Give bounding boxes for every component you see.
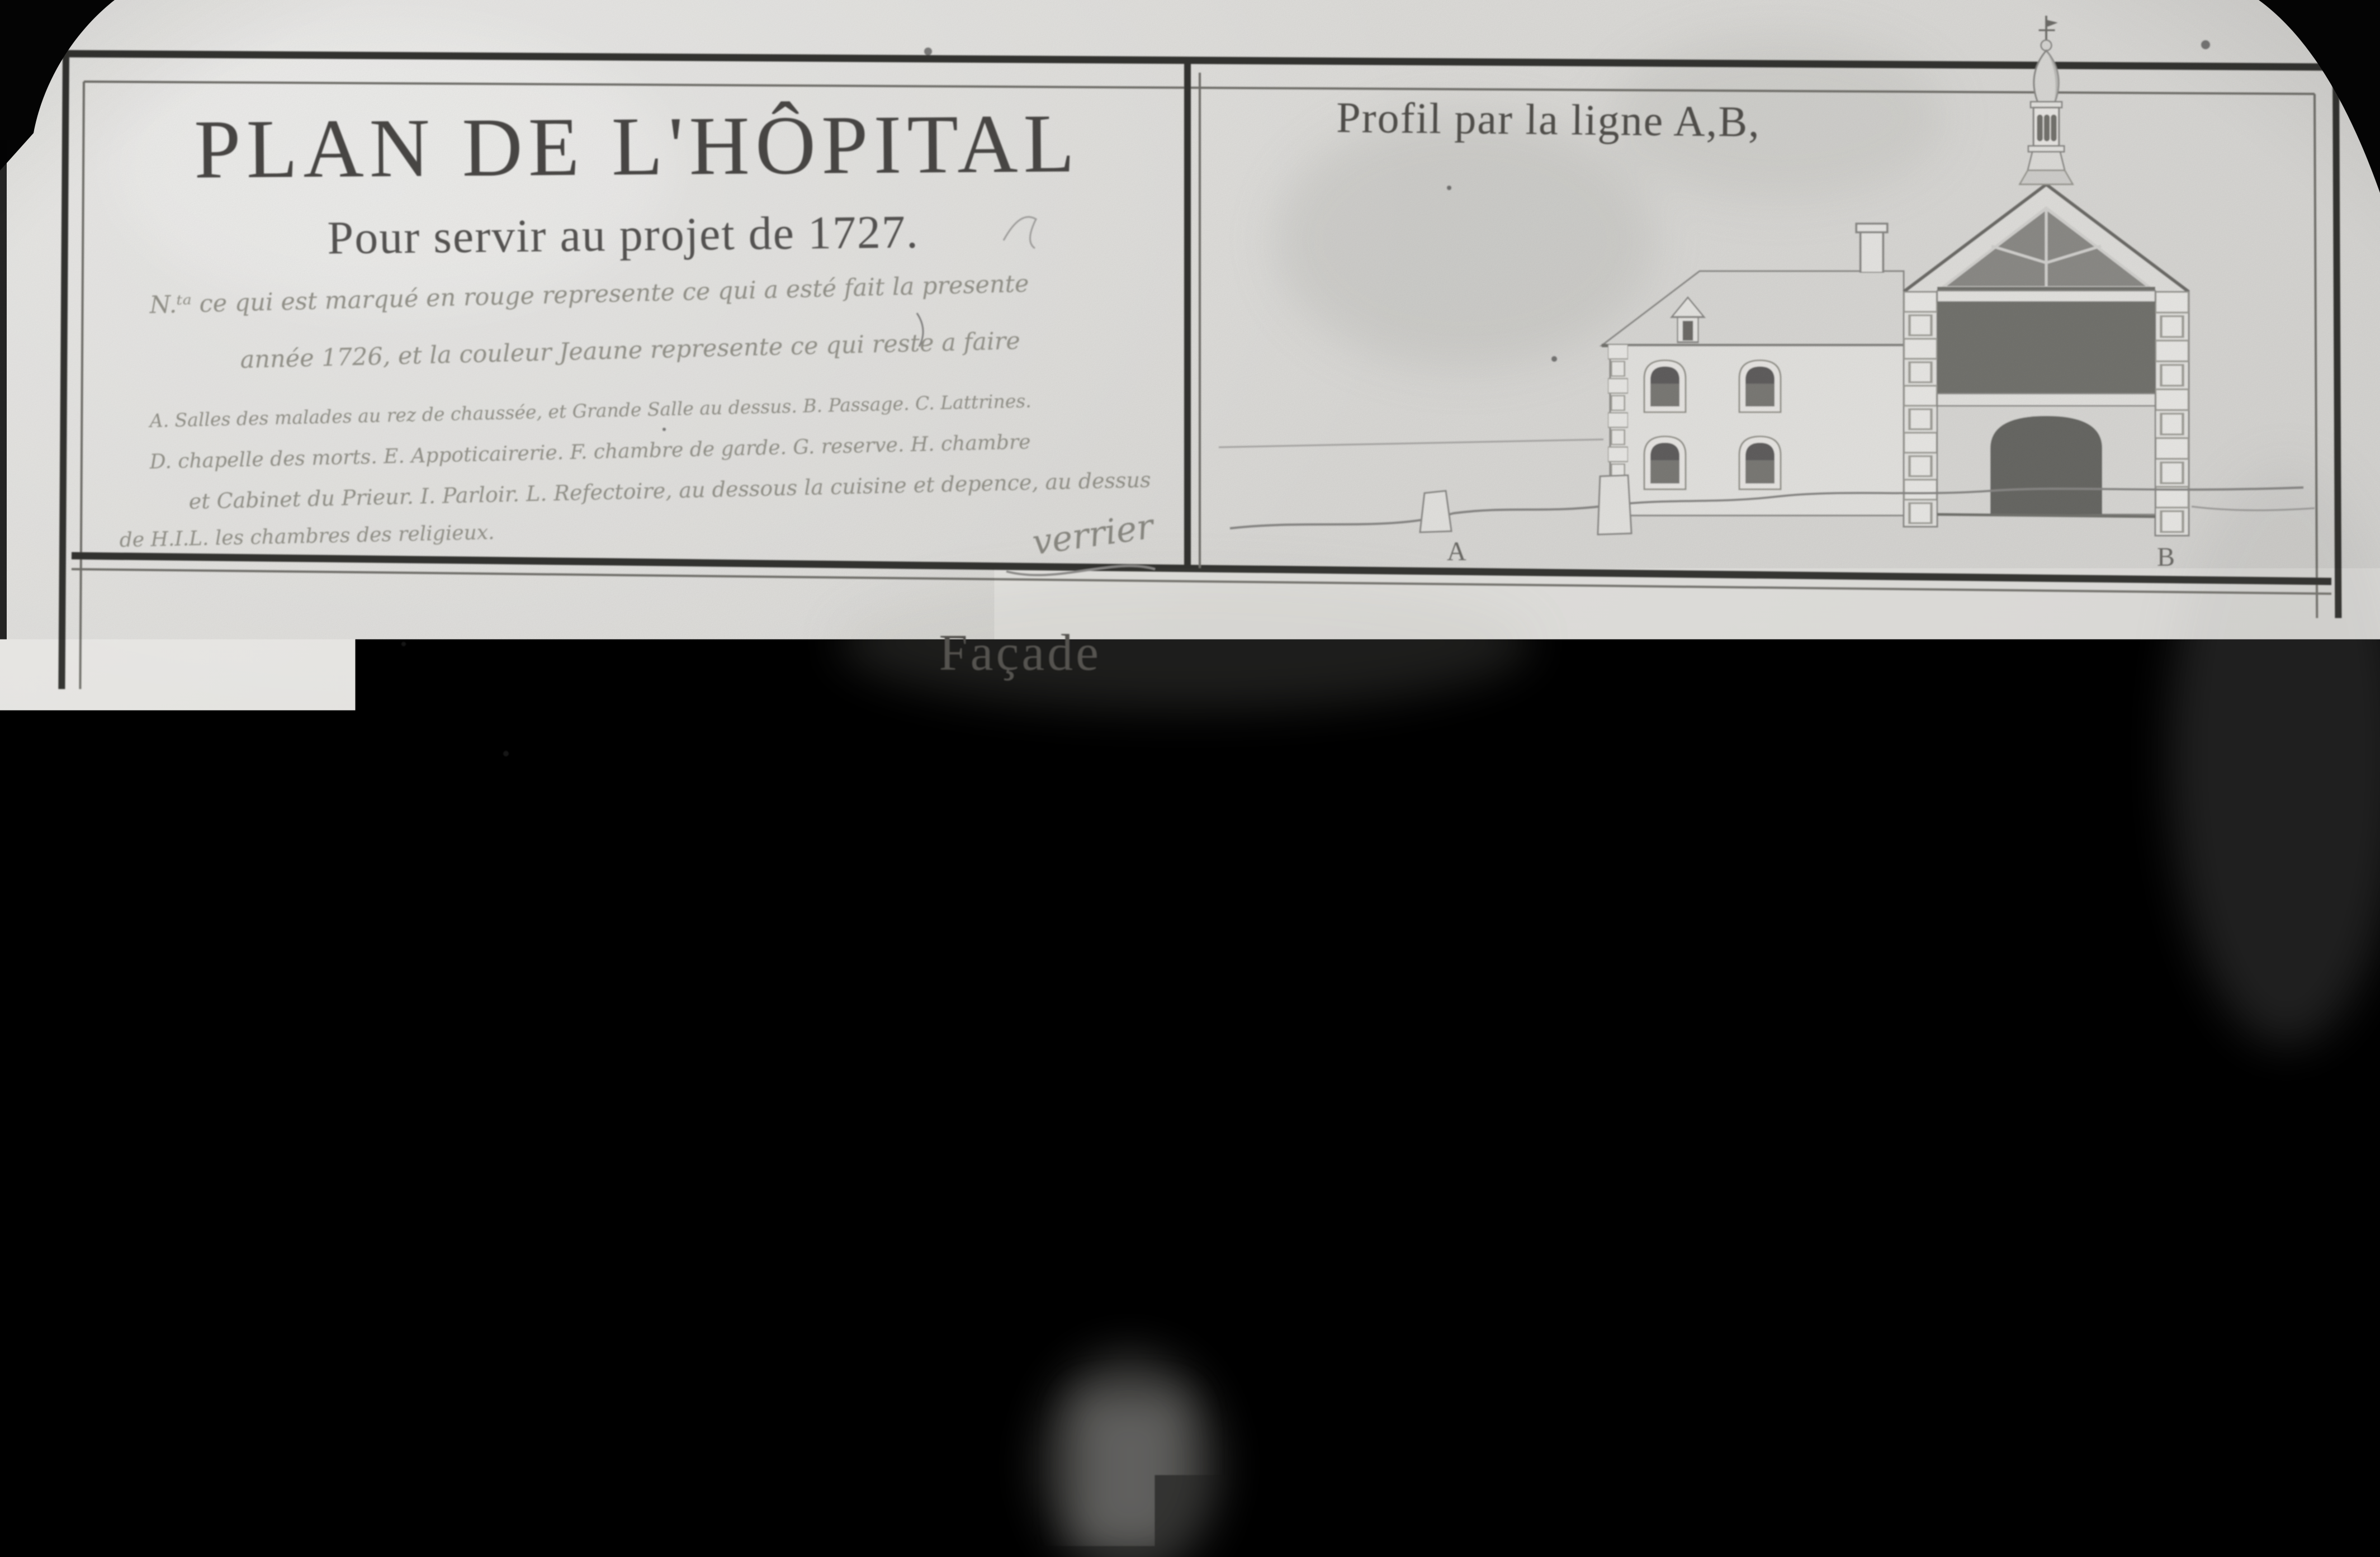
archival-photo-stage: PLAN DE L'HÔPITAL Pour servir au projet … <box>0 0 2380 1557</box>
plan-photograph: PLAN DE L'HÔPITAL Pour servir au projet … <box>0 0 2380 1557</box>
film-grain-overlay <box>0 0 2380 1557</box>
